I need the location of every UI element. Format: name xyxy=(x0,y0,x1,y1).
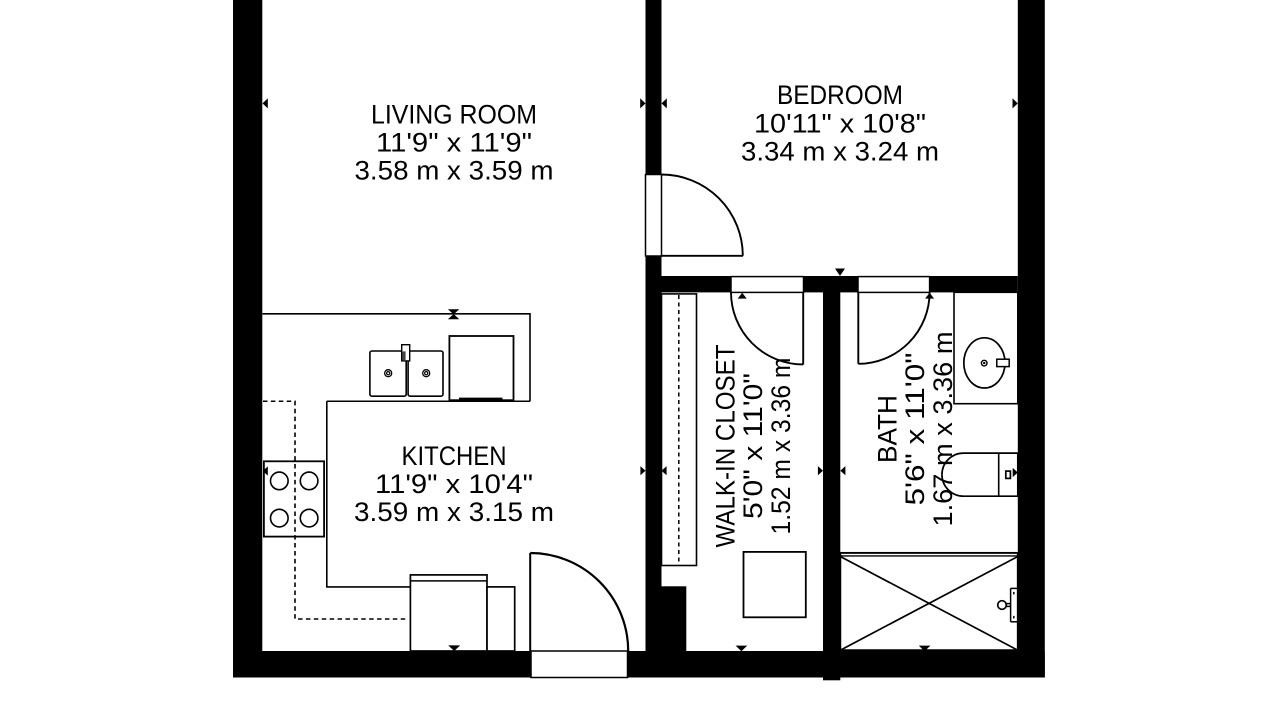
svg-text:5'6" x 11'0": 5'6" x 11'0" xyxy=(900,352,930,505)
svg-text:11'9" x 11'9": 11'9" x 11'9" xyxy=(376,127,532,157)
svg-text:11'9" x 10'4": 11'9" x 10'4" xyxy=(375,469,533,499)
svg-text:3.59 m x 3.15 m: 3.59 m x 3.15 m xyxy=(354,497,554,527)
svg-text:1.52 m x 3.36 m: 1.52 m x 3.36 m xyxy=(766,358,796,535)
svg-text:BATH: BATH xyxy=(873,395,903,463)
svg-text:5'0" x 11'0": 5'0" x 11'0" xyxy=(738,373,768,519)
svg-text:BEDROOM: BEDROOM xyxy=(777,80,903,110)
svg-text:LIVING ROOM: LIVING ROOM xyxy=(371,99,537,129)
svg-text:10'11" x 10'8": 10'11" x 10'8" xyxy=(754,108,926,138)
svg-text:WALK-IN CLOSET: WALK-IN CLOSET xyxy=(711,345,741,548)
svg-text:KITCHEN: KITCHEN xyxy=(402,441,507,471)
svg-text:3.34 m x 3.24 m: 3.34 m x 3.24 m xyxy=(741,136,939,166)
svg-text:1.67 m x 3.36 m: 1.67 m x 3.36 m xyxy=(928,332,958,527)
svg-text:3.58 m x 3.59 m: 3.58 m x 3.59 m xyxy=(355,156,554,186)
